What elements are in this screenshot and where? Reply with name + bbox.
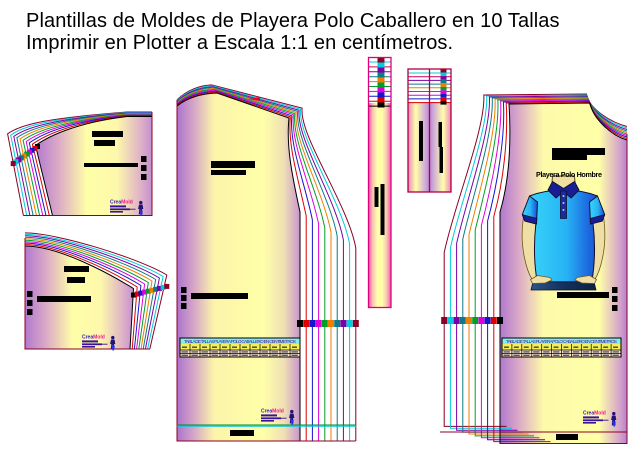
- svg-text:TABLA DE TALLAS PLAYERA POLO C: TABLA DE TALLAS PLAYERA POLO CABALLERO E…: [506, 339, 617, 344]
- svg-text:CreaMold: CreaMold: [82, 335, 105, 341]
- svg-text:CreaMold: CreaMold: [110, 200, 133, 206]
- svg-text:Playera Polo Hombre: Playera Polo Hombre: [536, 170, 602, 179]
- svg-text:TABLA DE TALLAS PLAYERA POLO C: TABLA DE TALLAS PLAYERA POLO CABALLERO E…: [184, 339, 296, 344]
- svg-text:CreaMold: CreaMold: [583, 411, 606, 417]
- svg-text:CreaMold: CreaMold: [261, 409, 284, 415]
